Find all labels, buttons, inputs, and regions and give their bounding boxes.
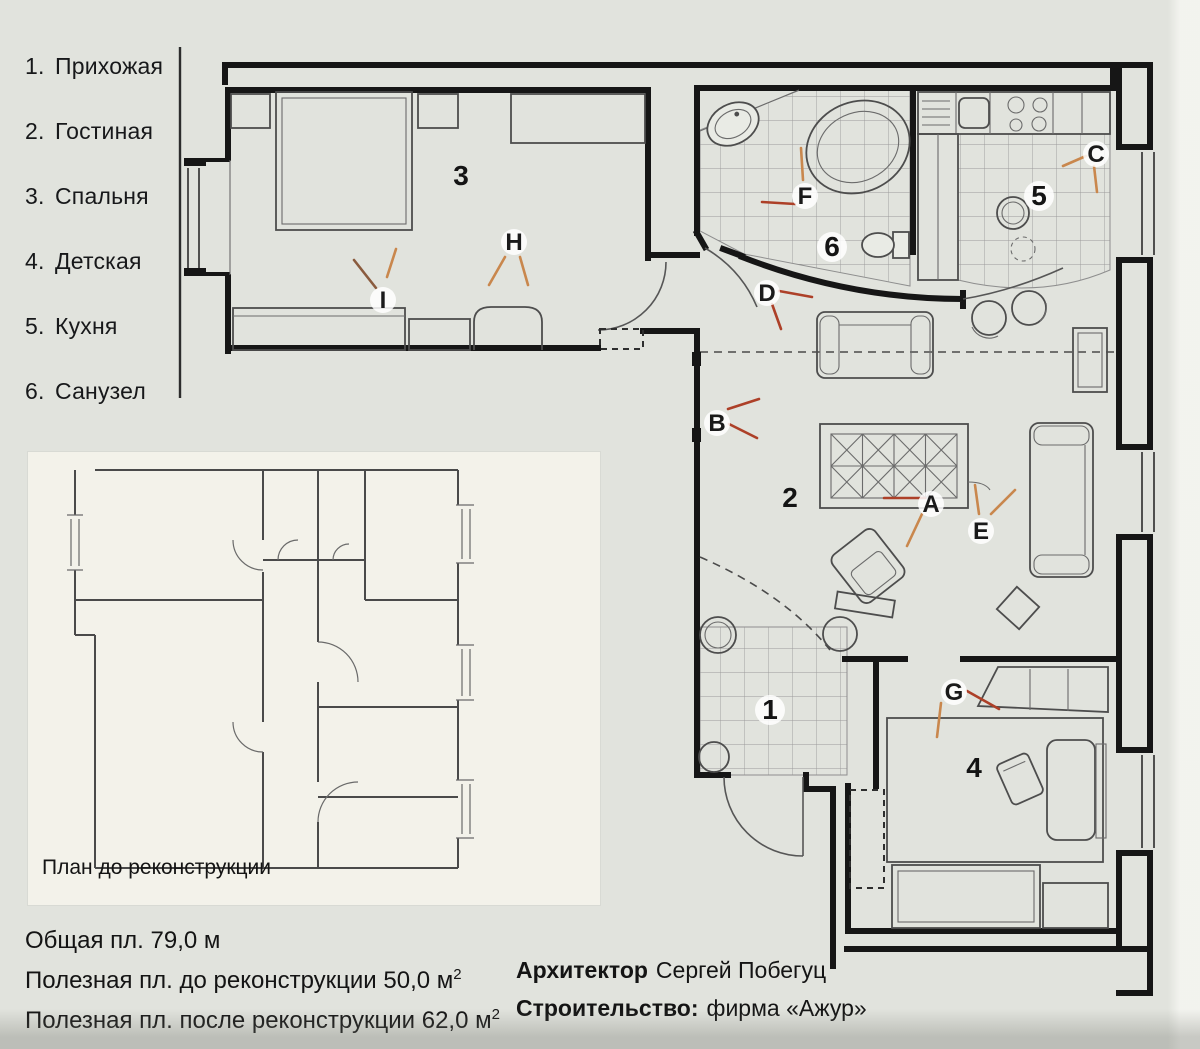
legend-num: 4.: [25, 248, 55, 275]
kitchen-sink: [959, 98, 989, 128]
room-number-5: 5: [1031, 180, 1047, 211]
side-table-tilted: [997, 587, 1039, 629]
wall-mark-1: [692, 352, 701, 366]
nightstand-left: [231, 94, 270, 128]
legend-item-5: 5.Кухня: [25, 313, 163, 340]
builder-line: Строительство:фирма «Ажур»: [516, 995, 867, 1022]
legend-num: 1.: [25, 53, 55, 80]
callout-D: D: [758, 280, 775, 307]
callout-A: A: [922, 491, 939, 518]
builder-label: Строительство:: [516, 995, 699, 1021]
legend-num: 2.: [25, 118, 55, 145]
children-window: [1142, 755, 1154, 848]
legend-item-2: 2.Гостиная: [25, 118, 163, 145]
toilet: [862, 233, 894, 257]
room-number-2: 2: [782, 482, 798, 513]
nightstand-right: [418, 94, 458, 128]
wardrobe: [511, 94, 645, 143]
inset-caption: План до реконструкции: [42, 856, 271, 880]
sofa-top: [817, 312, 933, 378]
architect-line: АрхитекторСергей Побегуц: [516, 957, 867, 984]
legend-label: Кухня: [55, 313, 118, 339]
area-before: Полезная пл. до реконструкции 50,0 м: [25, 967, 453, 994]
area-before-line: Полезная пл. до реконструкции 50,0 м2: [25, 966, 500, 995]
outer-building-line: [180, 47, 206, 398]
bed: [276, 92, 412, 230]
callout-F: F: [798, 183, 813, 210]
bedroom-dashed-wardrobe: [600, 329, 643, 349]
window-niche: [186, 160, 228, 274]
legend-item-1: 1.Прихожая: [25, 53, 163, 80]
room-number-4: 4: [966, 752, 982, 783]
legend-item-4: 4.Детская: [25, 248, 163, 275]
room-legend: 1.Прихожая 2.Гостиная 3.Спальня 4.Детска…: [25, 53, 163, 405]
legend-item-6: 6.Санузел: [25, 378, 163, 405]
dresser: [233, 308, 405, 350]
legend-label: Детская: [55, 248, 142, 274]
area-after-line: Полезная пл. после реконструкции 62,0 м2: [25, 1006, 500, 1035]
room-number-6: 6: [824, 231, 840, 262]
magazine-floorplan-page: 1 2 3 4 5 6 A B C D E F G H: [0, 0, 1200, 1049]
legend-label: Прихожая: [55, 53, 163, 79]
credits: АрхитекторСергей Побегуц Строительство:ф…: [516, 957, 867, 1022]
floor-plan-before: [28, 452, 600, 905]
callout-B: B: [708, 410, 725, 437]
sofa-right: [1030, 423, 1093, 577]
bedroom-furniture: [230, 92, 645, 350]
architect-name: Сергей Побегуц: [656, 957, 826, 983]
area-summary: Общая пл. 79,0 м Полезная пл. до реконст…: [25, 927, 500, 1035]
zone-dashes: [700, 352, 1119, 650]
callout-E: E: [973, 518, 989, 545]
area-before-sup: 2: [453, 966, 461, 983]
kitchen-window: [1142, 152, 1154, 255]
bench: [835, 592, 895, 618]
inset-doors: [233, 540, 358, 822]
bed-children: [892, 865, 1040, 928]
room-number-1: 1: [762, 694, 778, 725]
inset-walls: [75, 470, 458, 868]
legend-item-3: 3.Спальня: [25, 183, 163, 210]
bedroom-door-arc: [598, 262, 666, 330]
living-furniture: [817, 291, 1107, 629]
builder-name: фирма «Ажур»: [707, 995, 867, 1021]
desk: [978, 667, 1108, 712]
stool-1: [972, 301, 1006, 335]
callout-C: C: [1087, 141, 1104, 168]
legend-label: Спальня: [55, 183, 149, 209]
bedroom-window: [188, 168, 199, 268]
callout-H: H: [505, 229, 522, 256]
area-after-sup: 2: [492, 1006, 500, 1023]
wall-mark-2: [692, 428, 701, 442]
entrance-door-arc: [724, 777, 803, 856]
closet-dashed-wardrobe: [850, 790, 884, 888]
legend-label: Гостиная: [55, 118, 153, 144]
living-window: [1142, 452, 1154, 532]
architect-label: Архитектор: [516, 957, 648, 983]
legend-label: Санузел: [55, 378, 146, 404]
area-after: Полезная пл. после реконструкции 62,0 м: [25, 1007, 492, 1034]
inset-before-plan: План до реконструкции: [28, 452, 600, 905]
chair-children: [996, 752, 1045, 806]
legend-num: 3.: [25, 183, 55, 210]
area-total: Общая пл. 79,0 м: [25, 927, 220, 954]
armchair-bedroom: [474, 307, 542, 350]
room-number-3: 3: [453, 160, 469, 191]
legend-num: 5.: [25, 313, 55, 340]
inset-windows: [67, 505, 474, 838]
area-total-line: Общая пл. 79,0 м: [25, 927, 500, 955]
callout-G: G: [945, 679, 964, 706]
table-children: [1043, 883, 1108, 928]
children-furniture: [887, 667, 1108, 928]
legend-num: 6.: [25, 378, 55, 405]
callout-I: I: [380, 287, 387, 314]
daybed: [1047, 740, 1095, 840]
